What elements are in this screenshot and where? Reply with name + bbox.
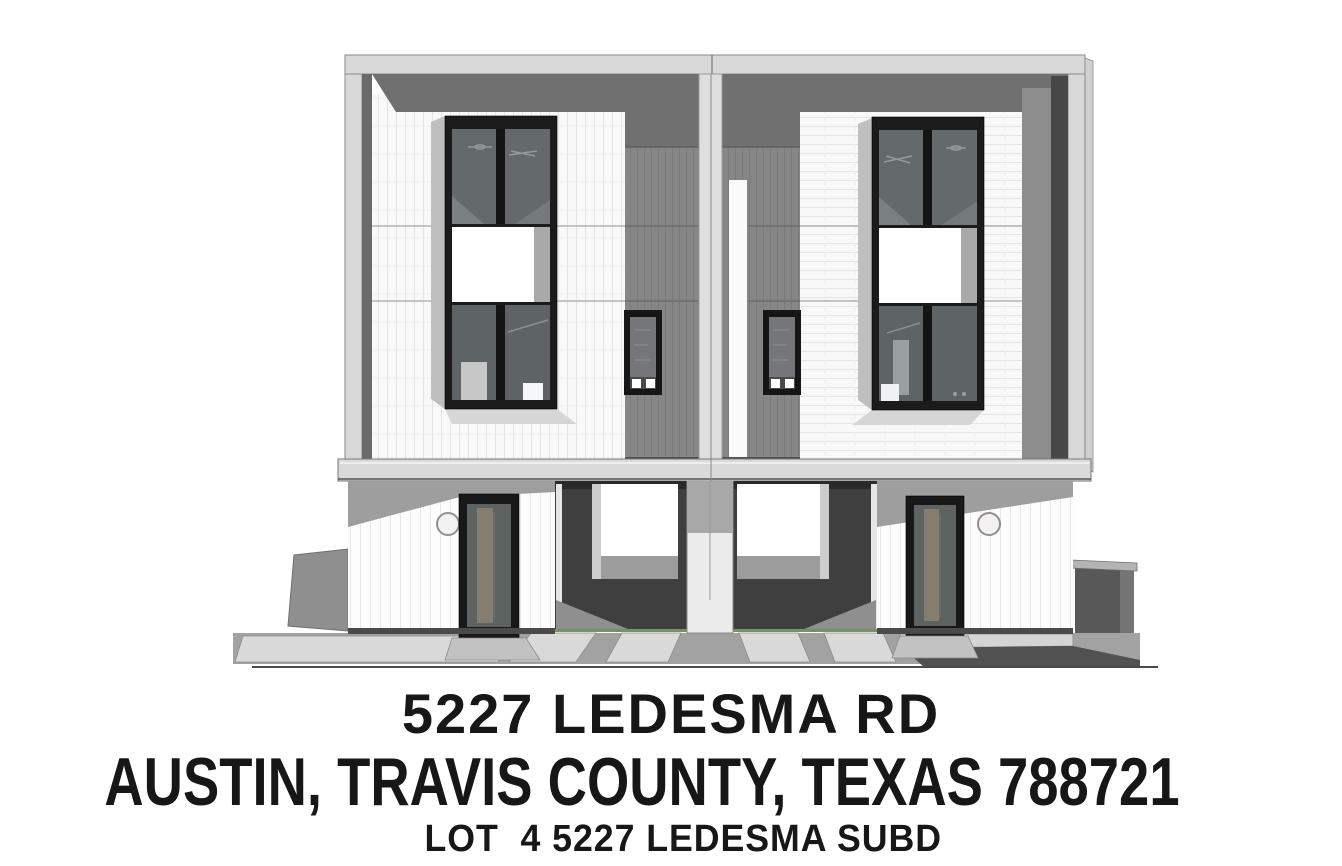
upper-block (338, 55, 1093, 481)
right-recess-band (1022, 88, 1051, 460)
left-sconce-light-icon (437, 513, 459, 535)
address-line-lot-text: LOT 4 5227 LEDESMA SUBD (424, 820, 941, 858)
left-unit-window (431, 116, 577, 424)
left-entry-door (459, 494, 519, 638)
carport-breezeway (555, 481, 877, 633)
right-unit-lower-facade (877, 481, 1073, 658)
left-unit-upper-facade (372, 74, 699, 460)
address-line-street: 5227 LEDESMA RD (0, 686, 1342, 742)
front-walkway-and-steps (233, 633, 1140, 668)
building-elevation-rendering (0, 0, 1342, 700)
floor-ledge (338, 459, 1091, 481)
right-entry-door (906, 496, 964, 636)
carport-center-column (687, 481, 733, 633)
left-unit-recessed-panel (625, 147, 699, 460)
left-door-step (445, 638, 540, 660)
left-frame-column (345, 74, 362, 462)
right-recess-shadow (1051, 76, 1068, 460)
address-line-city: AUSTIN, TRAVIS COUNTY, TEXAS 788721 (0, 748, 1342, 816)
right-unit-upper-facade (722, 74, 1068, 460)
address-line-city-text: AUSTIN, TRAVIS COUNTY, TEXAS 788721 (104, 748, 1179, 816)
recess-light-stripe (729, 180, 747, 460)
address-line-lot: LOT 4 5227 LEDESMA SUBD (0, 820, 1342, 858)
lower-floor (348, 481, 1073, 660)
right-door-step (892, 636, 978, 658)
real-estate-flyer: 5227 LEDESMA RD AUSTIN, TRAVIS COUNTY, T… (0, 0, 1342, 866)
left-frame-shadow (362, 74, 372, 460)
right-unit-small-window (763, 310, 801, 395)
left-ground-slope (288, 549, 348, 631)
left-unit-small-window (624, 310, 662, 395)
left-unit-lower-facade (348, 481, 555, 660)
right-unit-window (852, 117, 984, 425)
right-frame-column (1068, 74, 1085, 460)
center-divider-column (699, 74, 722, 464)
right-sconce-light-icon (978, 513, 1000, 535)
